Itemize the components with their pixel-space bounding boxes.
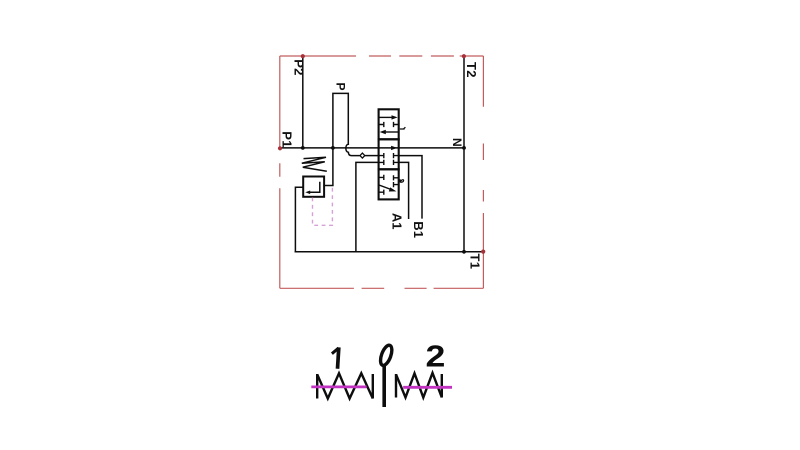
svg-text:P2: P2 [292,59,307,76]
svg-text:N: N [450,138,464,147]
svg-text:P: P [334,83,348,91]
svg-text:2: 2 [426,340,446,374]
svg-text:T1: T1 [468,254,483,270]
svg-text:P1: P1 [280,131,295,148]
svg-text:T2: T2 [464,62,479,78]
svg-text:A1: A1 [390,213,405,230]
svg-text:B1: B1 [411,221,426,238]
